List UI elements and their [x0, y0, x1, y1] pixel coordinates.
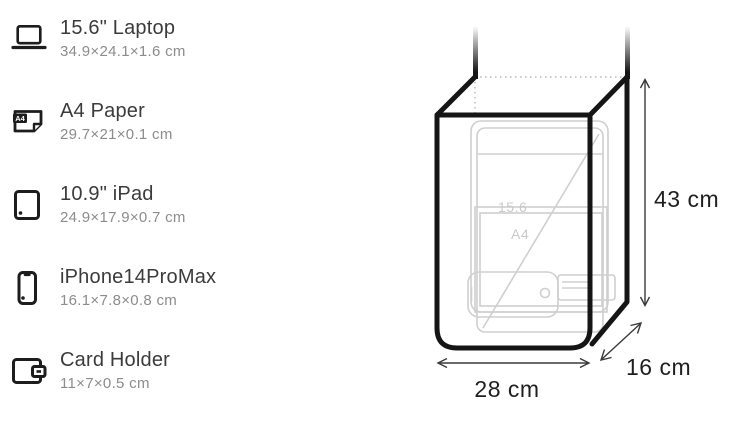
- width-dimension-label: 28 cm: [474, 376, 539, 402]
- item-dimensions: 11×7×0.5 cm: [60, 373, 170, 394]
- top-right-edge: [590, 77, 627, 115]
- list-item-ipad: 10.9" iPad 24.9×17.9×0.7 cm: [10, 182, 380, 228]
- item-dimensions: 24.9×17.9×0.7 cm: [60, 207, 186, 228]
- top-left-edge: [437, 77, 475, 115]
- bag-straps: [476, 26, 628, 79]
- laptop-size-watermark: 15.6: [498, 199, 527, 215]
- laptop-icon: [10, 23, 48, 55]
- list-item-laptop: 15.6" Laptop 34.9×24.1×1.6 cm: [10, 16, 380, 62]
- hidden-edges-dotted: [475, 77, 627, 114]
- iphone-icon: [10, 270, 48, 306]
- item-dimensions: 34.9×24.1×1.6 cm: [60, 41, 186, 62]
- bag-capacity-figure: 15.6" Laptop 34.9×24.1×1.6 cm A4 A4 Pape…: [0, 0, 750, 426]
- iphone-camera-circle: [541, 289, 550, 298]
- item-name: Card Holder: [60, 348, 170, 373]
- list-item-iphone: iPhone14ProMax 16.1×7.8×0.8 cm: [10, 265, 380, 311]
- item-name: A4 Paper: [60, 99, 173, 124]
- a4-watermark: A4: [511, 226, 529, 242]
- list-item-a4-paper: A4 A4 Paper 29.7×21×0.1 cm: [10, 99, 380, 145]
- item-name: 15.6" Laptop: [60, 16, 186, 41]
- ipad-icon: [10, 188, 48, 222]
- item-dimensions: 16.1×7.8×0.8 cm: [60, 290, 216, 311]
- list-item-card-holder: Card Holder 11×7×0.5 cm: [10, 348, 380, 394]
- card-holder-icon: [10, 355, 48, 387]
- a4-icon-label: A4: [15, 114, 25, 123]
- card-holder-slot-lines: [562, 282, 590, 288]
- items-inside-bag: [468, 121, 615, 332]
- item-name: 10.9" iPad: [60, 182, 186, 207]
- back-right-edge: [592, 77, 627, 344]
- ipad-outline: [471, 121, 608, 312]
- item-name: iPhone14ProMax: [60, 265, 216, 290]
- item-dimensions: 29.7×21×0.1 cm: [60, 124, 173, 145]
- depth-dimension-label: 16 cm: [626, 354, 691, 380]
- laptop-screen-diagonal: [483, 134, 599, 328]
- height-dimension-label: 43 cm: [654, 186, 719, 212]
- dimension-arrows: [438, 80, 650, 368]
- a4-paper-icon: A4: [10, 107, 48, 137]
- item-spec-list: 15.6" Laptop 34.9×24.1×1.6 cm A4 A4 Pape…: [10, 16, 380, 431]
- bag-wireframe-diagram: 15.6 A4: [395, 0, 750, 426]
